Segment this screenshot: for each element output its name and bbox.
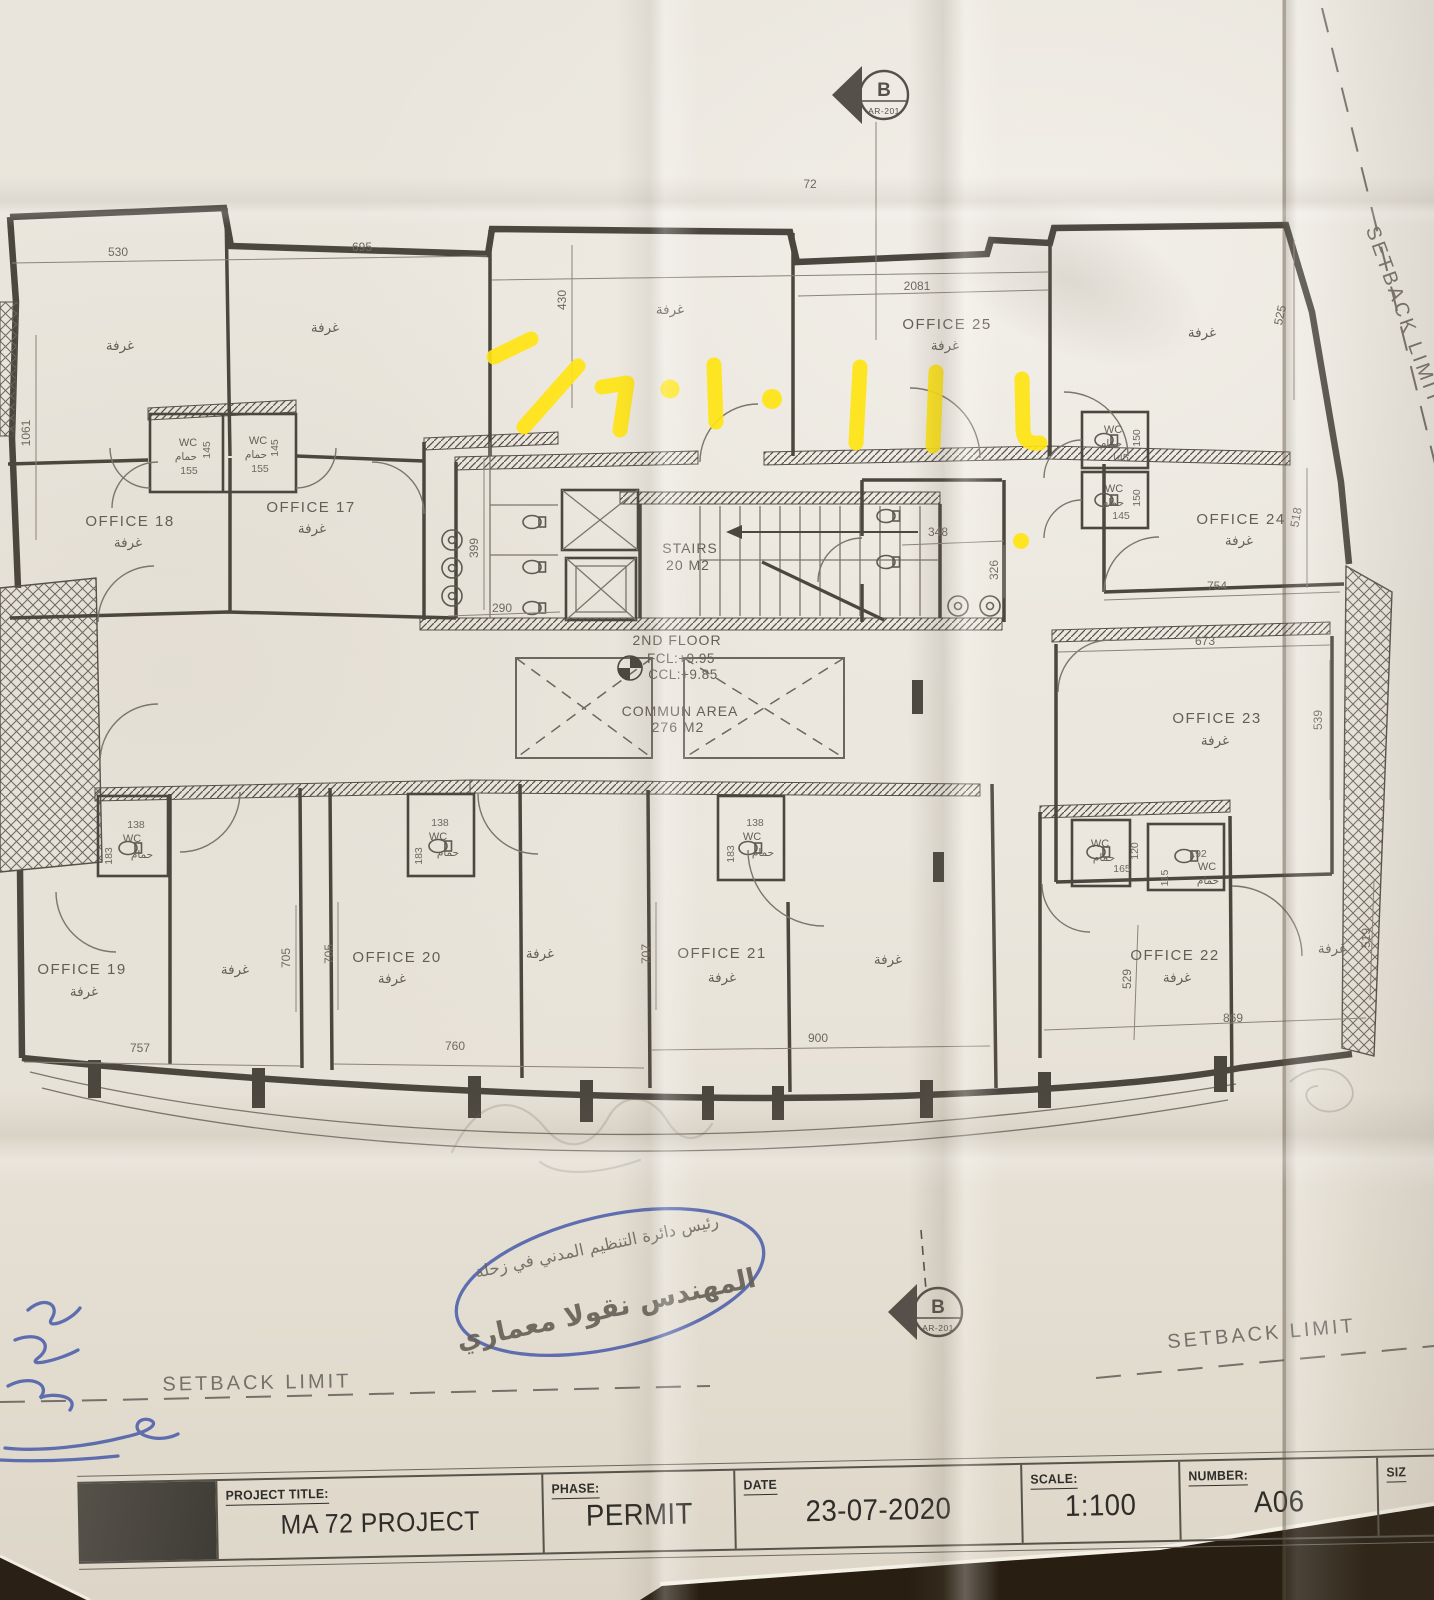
wc-label: WC	[1104, 424, 1122, 436]
phase-label: PHASE:	[551, 1480, 599, 1499]
room-office-25-ar: غرفة	[931, 338, 959, 354]
wc-label-ar: حمام	[245, 449, 267, 461]
room-office-22: OFFICE 22	[1130, 947, 1219, 964]
room-ar-8: غرفة	[1318, 941, 1346, 957]
date-value: 23-07-2020	[748, 1491, 1011, 1530]
room-office-17: OFFICE 17	[266, 499, 355, 516]
commun-area: 276 M2	[652, 719, 705, 735]
highlight-slash-1	[494, 339, 531, 357]
setback-limit-right: SETBACK LIMIT	[1361, 223, 1434, 408]
project-title-value: MA 72 PROJECT	[231, 1505, 530, 1542]
dim-757: 757	[130, 1041, 150, 1055]
fcl-level: FCL:+9.95	[647, 651, 715, 666]
date-label: DATE	[744, 1477, 778, 1496]
scale-value: 1:100	[1029, 1488, 1173, 1525]
dim-525: 525	[1271, 304, 1289, 327]
wc-dim: 183	[413, 847, 425, 865]
highlight-bar-2	[856, 367, 860, 443]
wc-dim: 145	[269, 439, 281, 457]
dim-754: 754	[1207, 579, 1227, 593]
dim-519: 519	[1359, 928, 1373, 948]
wc-label-ar: حمام	[752, 847, 774, 859]
wc-label: WC	[179, 437, 197, 449]
room-office-25: OFFICE 25	[902, 316, 991, 333]
room-office-20: OFFICE 20	[352, 949, 441, 966]
room-ar-6: غرفة	[526, 946, 554, 962]
room-ar-7: غرفة	[874, 952, 902, 968]
wc-label-ar: حمام	[1100, 438, 1122, 450]
section-marker-top: B AR-201	[832, 66, 908, 124]
floor-label: 2ND FLOOR	[632, 632, 721, 648]
dim-1061: 1061	[19, 419, 33, 446]
wc-dim: 145	[1112, 510, 1130, 522]
section-marker-icon	[832, 66, 862, 124]
dim-529: 529	[1120, 969, 1134, 989]
room-ar-4: غرفة	[1188, 325, 1216, 341]
size-label: SIZ	[1386, 1464, 1406, 1482]
number-cell: NUMBER: A06	[1180, 1458, 1380, 1540]
phase-value: PERMIT	[551, 1497, 727, 1535]
room-office-17-ar: غرفة	[298, 521, 326, 537]
highlight-dot-3	[1013, 533, 1029, 549]
dim-673: 673	[1195, 634, 1215, 648]
wc-label: WC	[743, 831, 761, 843]
level-mark-icon	[618, 656, 642, 680]
highlight-hook	[602, 383, 627, 430]
room-office-23-ar: غرفة	[1201, 733, 1229, 749]
room-office-20-ar: غرفة	[378, 971, 406, 987]
setback-limit-bottom-right: SETBACK LIMIT	[1166, 1315, 1356, 1353]
dim-326: 326	[987, 560, 1001, 580]
room-office-19-ar: غرفة	[70, 984, 98, 1000]
section-marker-bottom: B AR-201	[888, 1230, 962, 1340]
floor-plan-drawing: 530 695 430 2081 525 1061 399 290 348 32…	[0, 0, 1434, 1600]
wc-dim: 165	[1113, 863, 1131, 875]
wc-label: WC	[1091, 838, 1109, 850]
dim-695: 695	[352, 240, 372, 254]
room-office-21-ar: غرفة	[708, 970, 736, 986]
dim-705-a: 705	[279, 948, 293, 968]
balcony-hatch-left	[0, 578, 102, 872]
room-office-24-ar: غرفة	[1225, 533, 1253, 549]
wc-dim: 183	[103, 847, 115, 865]
approval-stamp: رئيس دائرة التنظيم المدني في زحلة المهند…	[442, 1182, 778, 1381]
setback-limit-bottom-left: SETBACK LIMIT	[162, 1370, 351, 1395]
scale-cell: SCALE: 1:100	[1022, 1462, 1181, 1543]
wc-dim: 155	[180, 465, 198, 477]
date-cell: DATE 23-07-2020	[736, 1465, 1024, 1549]
highlighter-annotation	[494, 339, 1040, 549]
wc-label: WC	[249, 435, 267, 447]
section-marker-ref: AR-201	[868, 106, 900, 116]
blueprint-photo: 530 695 430 2081 525 1061 399 290 348 32…	[0, 0, 1434, 1600]
room-ar-3: غرفة	[656, 302, 684, 318]
dim-348: 348	[928, 525, 948, 539]
commun-label: COMMUN AREA	[622, 703, 739, 719]
room-ar-1: غرفة	[106, 338, 134, 354]
room-office-18-ar: غرفة	[114, 535, 142, 551]
number-value: A06	[1188, 1484, 1369, 1522]
room-office-22-ar: غرفة	[1163, 970, 1191, 986]
highlight-bar-1	[714, 365, 716, 422]
wc-dim: 155	[251, 463, 269, 475]
highlight-dot-1	[661, 380, 680, 399]
canopy-curve	[30, 1072, 1236, 1151]
wc-dim: 150	[1131, 429, 1143, 447]
highlight-bar-4	[1022, 379, 1040, 443]
stairs-label: STAIRS	[662, 540, 718, 556]
section-marker-letter: B	[931, 1297, 945, 1318]
dim-430: 430	[555, 290, 569, 310]
wc-dim: 138	[746, 817, 764, 829]
wc-dim: 145	[1111, 452, 1129, 464]
wc-dim: 115	[1159, 869, 1171, 886]
wc-dim: 150	[1131, 489, 1143, 507]
dim-869: 869	[1223, 1011, 1243, 1025]
highlight-dot-2	[762, 389, 782, 409]
wc-label: WC	[429, 831, 447, 843]
wc-dim: 138	[431, 817, 449, 829]
dim-760: 760	[445, 1039, 465, 1053]
dimension-lines	[12, 122, 1374, 1068]
balcony-hatch-right	[1342, 566, 1392, 1056]
room-office-23: OFFICE 23	[1172, 710, 1261, 727]
ccl-level: CCL:+9.85	[648, 667, 717, 682]
dim-900: 900	[808, 1031, 828, 1045]
dim-707: 707	[639, 944, 653, 964]
room-ar-5: غرفة	[221, 962, 249, 978]
dim-705-b: 705	[322, 944, 336, 964]
wc-label: WC	[1105, 483, 1123, 495]
wc-label-ar: حمام	[175, 451, 197, 463]
dim-2081: 2081	[904, 279, 931, 293]
stairs-area: 20 M2	[666, 557, 710, 573]
project-title-label: PROJECT TITLE:	[225, 1486, 328, 1506]
dim-539: 539	[1311, 710, 1325, 730]
room-office-19: OFFICE 19	[37, 961, 126, 978]
dimension-labels: 530 695 430 2081 525 1061 399 290 348 32…	[19, 177, 1373, 1055]
scale-label: SCALE:	[1031, 1471, 1079, 1490]
room-office-24: OFFICE 24	[1196, 511, 1285, 528]
wc-label-ar: حمام	[1197, 875, 1219, 887]
title-block-logo-cell	[77, 1481, 218, 1562]
wc-dim: 183	[725, 845, 737, 863]
wc-dim: 145	[201, 441, 213, 459]
elevator-shafts	[562, 490, 638, 620]
size-cell: SIZ	[1378, 1456, 1434, 1536]
dim-399: 399	[467, 538, 481, 558]
dim-530: 530	[108, 245, 128, 259]
highlight-bar-3	[933, 372, 936, 446]
room-ar-2: غرفة	[311, 320, 339, 336]
highlight-slash-2	[524, 366, 578, 427]
wc-label: WC	[1198, 861, 1216, 873]
wc-label-ar: حمام	[1093, 852, 1115, 864]
room-office-21: OFFICE 21	[677, 945, 766, 962]
wc-dim: 192	[1189, 848, 1207, 860]
wc-dim: 120	[1129, 842, 1141, 860]
section-marker-letter: B	[877, 80, 891, 101]
project-title-cell: PROJECT TITLE: MA 72 PROJECT	[217, 1475, 545, 1560]
dim-518: 518	[1287, 506, 1304, 528]
room-office-18: OFFICE 18	[85, 513, 174, 530]
wc-label: WC	[123, 833, 141, 845]
number-label: NUMBER:	[1188, 1467, 1248, 1486]
wc-label-ar: حمام	[131, 849, 153, 861]
grid-number: 72	[803, 177, 817, 191]
phase-cell: PHASE: PERMIT	[543, 1471, 737, 1553]
dim-290: 290	[492, 601, 512, 615]
wc-dim: 138	[127, 819, 145, 831]
handwritten-signature	[0, 1302, 178, 1460]
wc-label-ar: حمام	[1102, 497, 1124, 509]
section-marker-ref: AR-201	[922, 1323, 954, 1333]
wc-label-ar: حمام	[437, 847, 459, 859]
section-marker-icon	[888, 1284, 917, 1340]
stamp-line-1: رئيس دائرة التنظيم المدني في زحلة	[473, 1212, 720, 1283]
